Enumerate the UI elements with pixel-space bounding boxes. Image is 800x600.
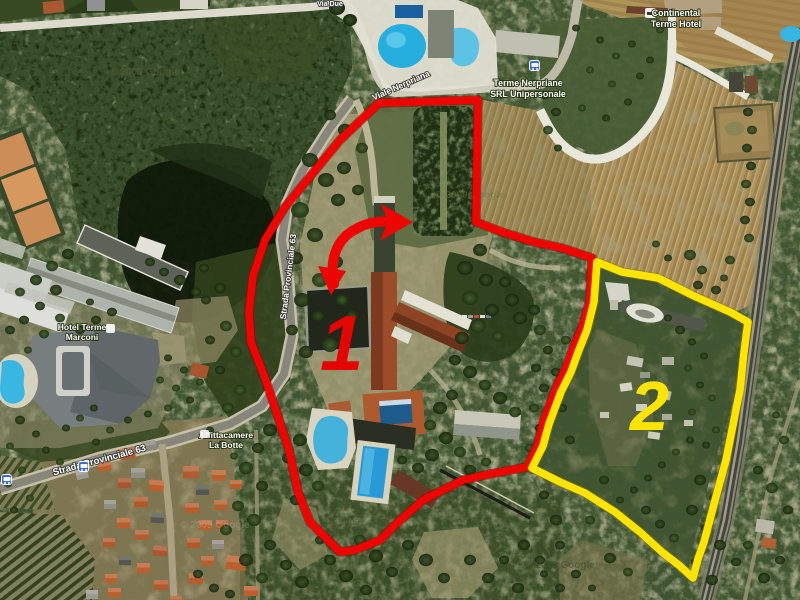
svg-text:© 2009: © 2009 (330, 517, 359, 527)
svg-text:© 2009 Google: © 2009 Google (110, 67, 180, 78)
svg-text:SRL Unipersonale: SRL Unipersonale (490, 89, 566, 99)
svg-text:© 2009 Google: © 2009 Google (525, 560, 595, 571)
svg-text:1: 1 (320, 299, 363, 387)
svg-text:La Botte: La Botte (209, 440, 243, 450)
svg-text:2: 2 (628, 367, 669, 445)
svg-text:© 2009 Google: © 2009 Google (180, 520, 250, 531)
svg-text:Continental: Continental (652, 8, 700, 18)
svg-text:© 2009 Google: © 2009 Google (435, 190, 505, 201)
svg-text:Marconi: Marconi (66, 332, 99, 342)
svg-text:Via Due: Via Due (317, 1, 343, 8)
svg-text:Hotel Terme: Hotel Terme (58, 322, 107, 332)
svg-text:Terme Hotel: Terme Hotel (651, 19, 701, 29)
svg-text:Terme Nerpriane: Terme Nerpriane (493, 78, 562, 88)
